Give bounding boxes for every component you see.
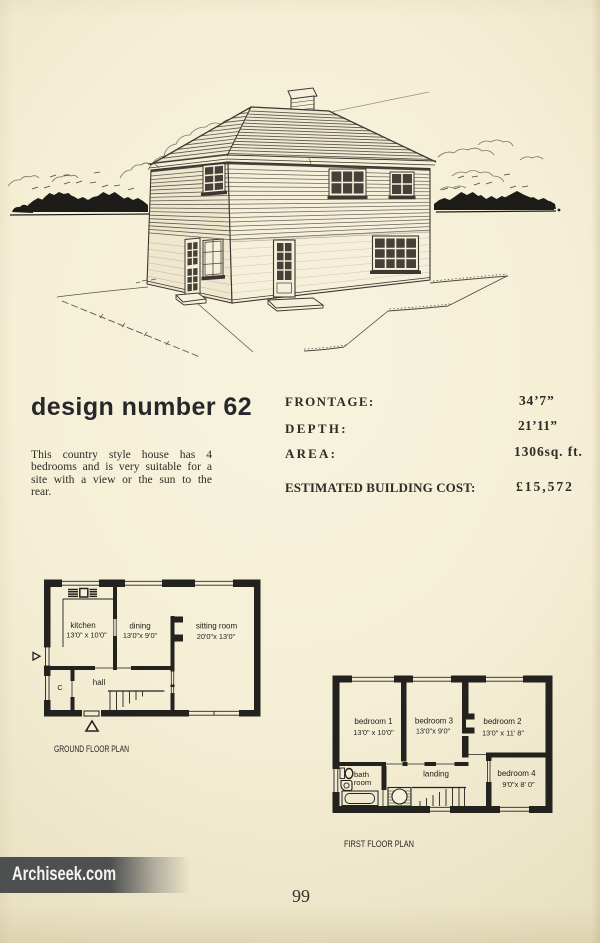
svg-text:FIRST FLOOR PLAN: FIRST FLOOR PLAN	[344, 839, 414, 849]
svg-text:13'0" x 10'0": 13'0" x 10'0"	[66, 631, 107, 640]
svg-text:kitchen: kitchen	[70, 621, 95, 630]
svg-text:13'0"x 9'0": 13'0"x 9'0"	[123, 631, 158, 640]
svg-text:sitting room: sitting room	[196, 622, 238, 631]
svg-text:hall: hall	[93, 678, 106, 687]
svg-text:GROUND FLOOR PLAN: GROUND FLOOR PLAN	[54, 744, 129, 754]
svg-text:C: C	[57, 683, 63, 692]
svg-text:landing: landing	[423, 770, 449, 779]
svg-text:13'0"x 9'0": 13'0"x 9'0"	[416, 727, 451, 736]
svg-text:bedroom 4: bedroom 4	[497, 769, 536, 778]
svg-text:bedroom 3: bedroom 3	[415, 717, 454, 726]
svg-text:13'0" x 10'0": 13'0" x 10'0"	[353, 728, 394, 737]
svg-text:13'0" x 11' 8": 13'0" x 11' 8"	[482, 729, 524, 738]
svg-text:bedroom 1: bedroom 1	[354, 717, 393, 726]
svg-text:20'0"x 13'0": 20'0"x 13'0"	[197, 632, 236, 641]
svg-text:9'0"x 8' 0": 9'0"x 8' 0"	[502, 780, 535, 789]
svg-text:bedroom 2: bedroom 2	[483, 717, 522, 726]
svg-text:dining: dining	[129, 622, 150, 631]
svg-text:room: room	[354, 778, 372, 787]
